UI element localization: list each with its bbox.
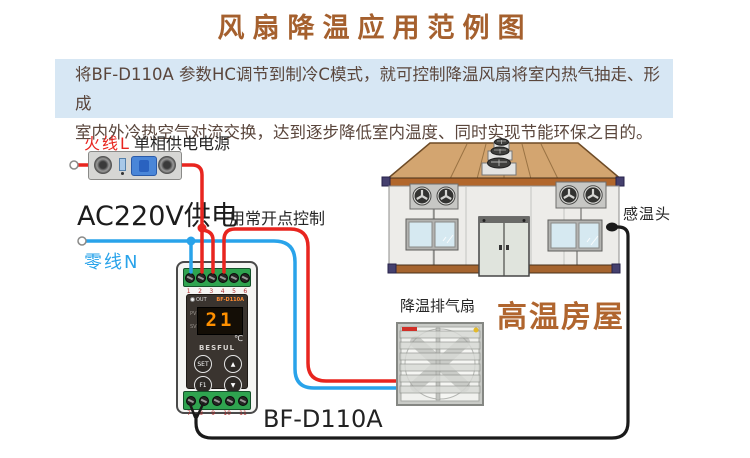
no-contact-control-label: 用常开点控制 (229, 205, 325, 229)
terminal-screw (212, 396, 222, 406)
temp-sensor-head (606, 223, 618, 232)
temp-sensor-label: 感温头 (623, 203, 671, 224)
terminal-screw (196, 273, 206, 283)
panel-model-text: BF-D110A (216, 297, 244, 303)
controller-buttons: SET ▲ F1 ▼ (193, 355, 243, 394)
terminal-screw (229, 273, 239, 283)
circuit-breaker (88, 151, 182, 180)
breaker-terminal-left (94, 156, 112, 174)
terminal-screw (186, 396, 196, 406)
hot-house-label: 高温房屋 (497, 292, 625, 336)
breaker-indicator-dot (121, 172, 124, 175)
terminal-screw (199, 396, 209, 406)
baseboard (388, 264, 620, 273)
ac220v-label: AC220V供电 (77, 194, 238, 233)
terminal-screw (207, 273, 217, 283)
controller-front-panel: OUT BF-D110A PV SV 21 ℃ BESFUL SET ▲ F1 … (186, 294, 248, 389)
exhaust-fan-label: 降温排气扇 (400, 295, 475, 316)
page-title: 风扇降温应用范例图 (0, 6, 750, 45)
terminal-block-top (183, 268, 251, 287)
door (479, 217, 529, 276)
neutral-wire-label: 零线N (84, 248, 139, 274)
out-indicator-dot (190, 297, 195, 302)
wall (389, 186, 619, 267)
model-label: BF-D110A (263, 405, 383, 433)
wall-fan-unit-right (556, 182, 606, 208)
terminal-screw (225, 396, 235, 406)
terminal-screw (240, 273, 250, 283)
terminal-block-bottom (183, 391, 251, 410)
pv-label: PV (190, 311, 196, 317)
up-arrow-button[interactable]: ▲ (224, 355, 242, 373)
terminal-screw (218, 273, 228, 283)
window-right (548, 220, 602, 251)
terminal-numbers-bottom: 7891011 (183, 410, 251, 417)
sv-label: SV (190, 324, 197, 330)
set-button[interactable]: SET (194, 355, 212, 373)
out-indicator: OUT (190, 297, 207, 303)
temperature-controller: 123456 OUT BF-D110A PV SV 21 ℃ BESFUL SE… (176, 261, 258, 414)
roof (386, 143, 622, 180)
description-box: 将BF-D110A 参数HC调节到制冷C模式，就可控制降温风扇将室内热气抽走、形… (55, 59, 673, 118)
breaker-terminal-right (158, 156, 176, 174)
terminal-screw (185, 273, 195, 283)
description-line-1: 将BF-D110A 参数HC调节到制冷C模式，就可控制降温风扇将室内热气抽走、形… (75, 60, 673, 118)
diagram-canvas: 风扇降温应用范例图 将BF-D110A 参数HC调节到制冷C模式，就可控制降温风… (0, 0, 750, 458)
brand-label: BESFUL (187, 344, 247, 352)
wall-fan-unit-left (410, 184, 458, 209)
breaker-marking (119, 158, 126, 171)
celsius-unit: ℃ (234, 334, 243, 343)
window-left (406, 219, 458, 250)
terminal-screw (238, 396, 248, 406)
temperature-display: 21 (197, 307, 243, 335)
breaker-switch (131, 156, 157, 176)
exhaust-fan (396, 322, 484, 406)
exhaust-fan-graphic (396, 322, 484, 406)
eave (382, 177, 624, 186)
